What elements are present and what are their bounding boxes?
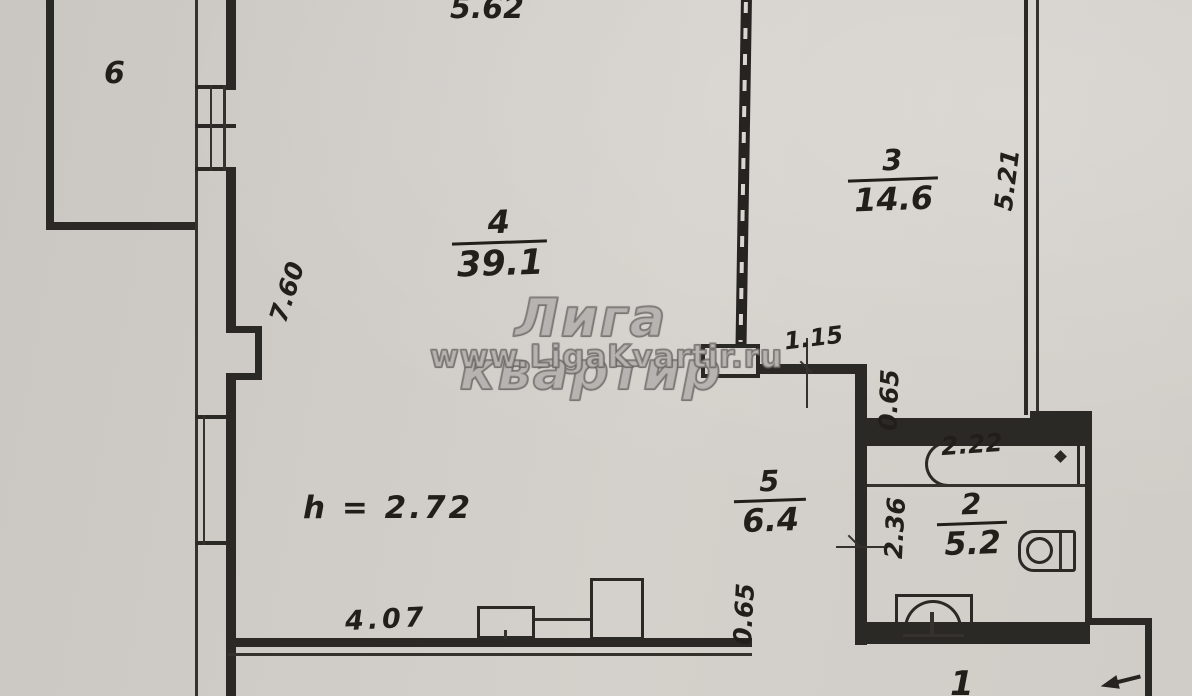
entry-step-wall-vertical xyxy=(1145,618,1152,696)
left-window-bar-top xyxy=(195,415,236,419)
kitchen-fixture-tall xyxy=(590,578,644,640)
toilet-bowl xyxy=(1026,537,1053,564)
right-wall-inner-line xyxy=(1024,0,1028,415)
kitchen-connector-line xyxy=(535,618,592,621)
room-4-number: 4 xyxy=(451,204,547,245)
bathroom-left-wall xyxy=(855,430,867,645)
toilet-tank-line xyxy=(1059,533,1062,569)
left-wall-outer-line xyxy=(195,0,198,696)
balcony-window-inner-line xyxy=(223,85,226,171)
balcony-window-glass-line xyxy=(210,85,212,171)
room-2-area: 5.2 xyxy=(937,523,1008,561)
watermark-url: www.LigaKvartir.ru xyxy=(430,342,740,373)
entrance-arrow-tail xyxy=(1113,674,1141,685)
dim-opening-width: 1.15 xyxy=(783,320,845,355)
balcony-window-bar-bottom xyxy=(195,167,236,171)
ceiling-height-label: h = 2.72 xyxy=(303,490,473,526)
room-5-label: 5 6.4 xyxy=(733,466,807,538)
partition-dash-pattern xyxy=(739,2,748,342)
left-wall-inner-mid xyxy=(226,167,236,328)
left-window-bar-bottom xyxy=(195,541,236,545)
balcony-window-bar-top xyxy=(195,85,236,89)
balcony-window-bar-mid xyxy=(195,124,236,128)
left-wall-inner-top xyxy=(226,0,236,90)
room-1-number: 1 xyxy=(950,664,974,696)
left-window-glass-line xyxy=(203,415,205,545)
balcony-bottom-wall xyxy=(46,222,196,230)
dim-top-wall: 5.62 xyxy=(450,0,524,26)
right-step-wall-vertical xyxy=(1085,411,1092,625)
room-6-number: 6 xyxy=(104,56,125,91)
right-step-wall-top xyxy=(1030,411,1092,418)
floor-plan: 5.62 6 3 14.6 5.21 4 39.1 7.60 1.15 0.65… xyxy=(0,0,1192,696)
room-2-number: 2 xyxy=(936,489,1007,526)
niche-bottom-wall xyxy=(226,373,262,380)
room-3-number: 3 xyxy=(847,144,938,182)
room-5-number: 5 xyxy=(733,466,806,503)
room-3-label: 3 14.6 xyxy=(847,144,939,217)
entry-step-wall-horizontal xyxy=(1085,618,1152,625)
kitchen-fixture-tick xyxy=(504,630,507,639)
dim-bottom-wall: 4.07 xyxy=(344,602,428,637)
bottom-wall-thin xyxy=(228,653,752,656)
washbasin-tap xyxy=(930,612,934,636)
room-5-area: 6.4 xyxy=(734,500,807,538)
room-2-label: 2 5.2 xyxy=(936,489,1008,561)
right-wall-outer-line xyxy=(1036,0,1039,418)
niche-right-wall xyxy=(255,326,262,380)
room-4-area: 39.1 xyxy=(452,242,548,284)
dim-bathtub-length: 2.22 xyxy=(940,428,1004,461)
bottom-wall-thick xyxy=(228,638,752,647)
entrance-arrow xyxy=(1099,669,1145,693)
left-wall-inner-bottom xyxy=(226,380,236,696)
room-3-area: 14.6 xyxy=(848,179,939,217)
room-4-label: 4 39.1 xyxy=(451,204,549,283)
balcony-left-wall xyxy=(46,0,54,229)
